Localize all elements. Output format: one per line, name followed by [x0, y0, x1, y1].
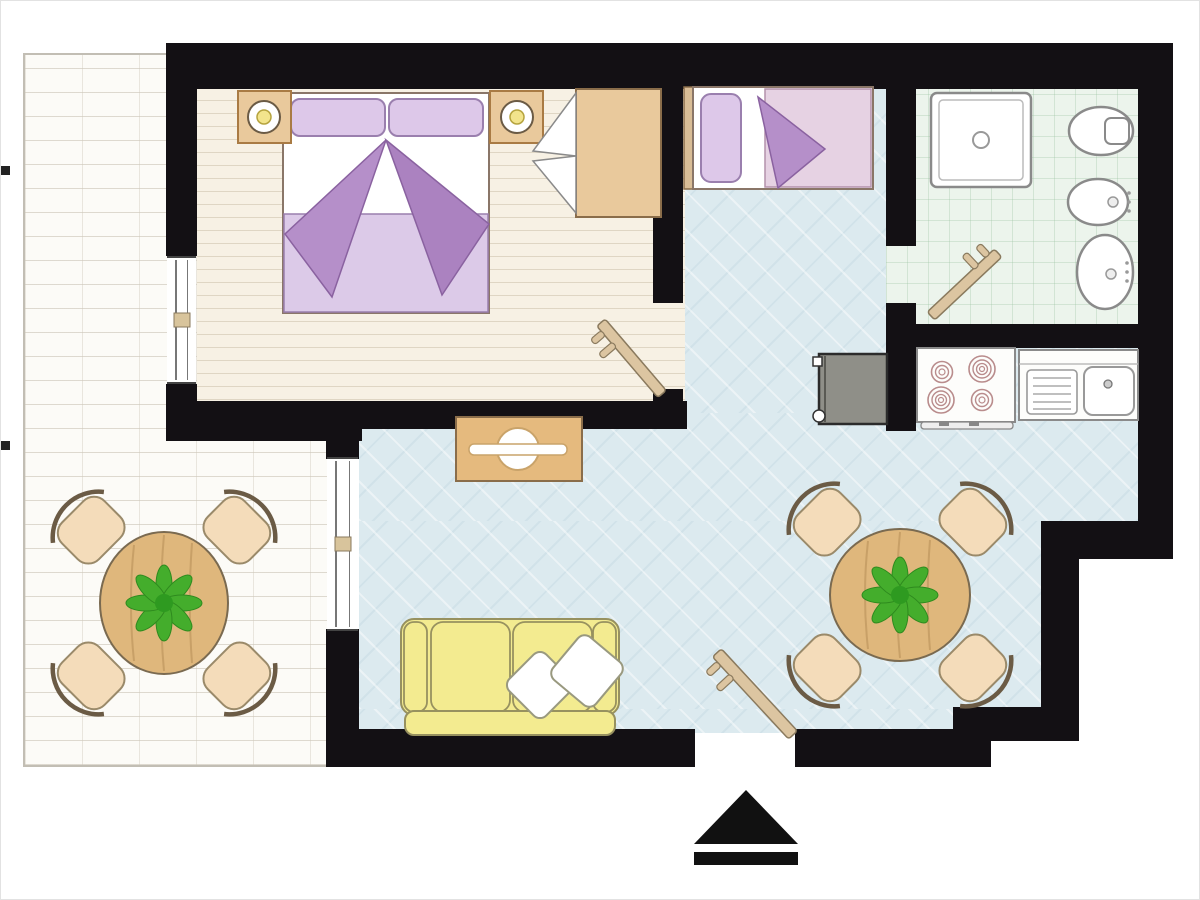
- pillow-right: [389, 99, 483, 136]
- floor-plan-canvas: [0, 0, 1200, 900]
- washbasin: [1077, 235, 1133, 309]
- sofa-base: [405, 711, 615, 735]
- washbasin-bowl: [1077, 235, 1133, 309]
- stove: [917, 348, 1015, 429]
- single-bed-pillow: [701, 94, 741, 182]
- entrance-door-leaf: [713, 649, 798, 739]
- furniture-layer: [1, 1, 1200, 900]
- wardrobe: [533, 89, 661, 217]
- potted-plant: [126, 565, 202, 641]
- bidet-tap-dot: [1127, 191, 1131, 195]
- sink-basin: [1084, 367, 1134, 415]
- appliance-gray: [813, 354, 887, 424]
- stove-top: [917, 348, 1015, 422]
- nightstand-left: [238, 91, 291, 143]
- entrance-arrow: [694, 790, 798, 865]
- bidet: [1068, 179, 1131, 225]
- stove-handle: [921, 422, 1013, 429]
- washbasin-drain: [1106, 269, 1116, 279]
- sofa-cushion-left: [431, 622, 510, 712]
- appliance-hinge-bottom: [813, 410, 825, 422]
- bedroom-door: [584, 319, 666, 408]
- console-table: [456, 417, 582, 481]
- pillow-left: [291, 99, 385, 136]
- console-table-bar: [469, 444, 567, 455]
- lamp-left-bulb: [257, 110, 271, 124]
- sink-drainer: [1027, 370, 1077, 414]
- washbasin-tap-dot: [1125, 279, 1129, 283]
- appliance-body: [819, 354, 887, 424]
- shower-drain: [973, 132, 989, 148]
- bedroom-door-handle: [590, 330, 605, 344]
- potted-plant: [862, 557, 938, 633]
- single-bed: [684, 87, 873, 189]
- double-bed: [283, 93, 489, 313]
- bidet-tap-dot: [1127, 209, 1131, 213]
- wardrobe-body: [576, 89, 661, 217]
- toilet-cistern: [1105, 118, 1129, 144]
- bedroom-door-handle: [599, 342, 617, 359]
- plant-center: [155, 594, 173, 612]
- washbasin-tap-dot: [1125, 261, 1129, 265]
- nightstand-right: [490, 91, 543, 143]
- bidet-drain: [1108, 197, 1118, 207]
- shower: [931, 93, 1031, 187]
- terrace-table-set: [41, 480, 288, 727]
- sink-faucet-dot: [1104, 380, 1112, 388]
- plant-center: [891, 586, 909, 604]
- bathroom-door-handle: [976, 243, 991, 258]
- single-bed-headboard: [684, 87, 693, 189]
- living-table-set: [777, 472, 1024, 719]
- entrance-door-handle: [706, 661, 722, 676]
- toilet: [1069, 107, 1133, 155]
- stove-handle-tab: [939, 421, 949, 426]
- lamp-right-bulb: [510, 110, 524, 124]
- appliance-hinge-top: [813, 357, 822, 366]
- bathroom-door-handle: [962, 252, 979, 270]
- bidet-tap-dot: [1127, 200, 1131, 204]
- wardrobe-door-open-bottom: [533, 156, 576, 213]
- sofa-arm-left: [404, 622, 427, 712]
- entrance-door-handle: [716, 674, 735, 692]
- bidet-bowl: [1068, 179, 1128, 225]
- sofa: [401, 619, 626, 735]
- entrance-door: [699, 649, 797, 752]
- bathroom-door: [916, 237, 1002, 320]
- entrance-arrow-triangle: [694, 790, 798, 844]
- bedroom-door-leaf: [597, 319, 666, 398]
- counter-with-sink: [1019, 350, 1138, 420]
- washbasin-tap-dot: [1125, 270, 1129, 274]
- stove-handle-tab: [969, 421, 979, 426]
- entrance-arrow-bar: [694, 852, 798, 865]
